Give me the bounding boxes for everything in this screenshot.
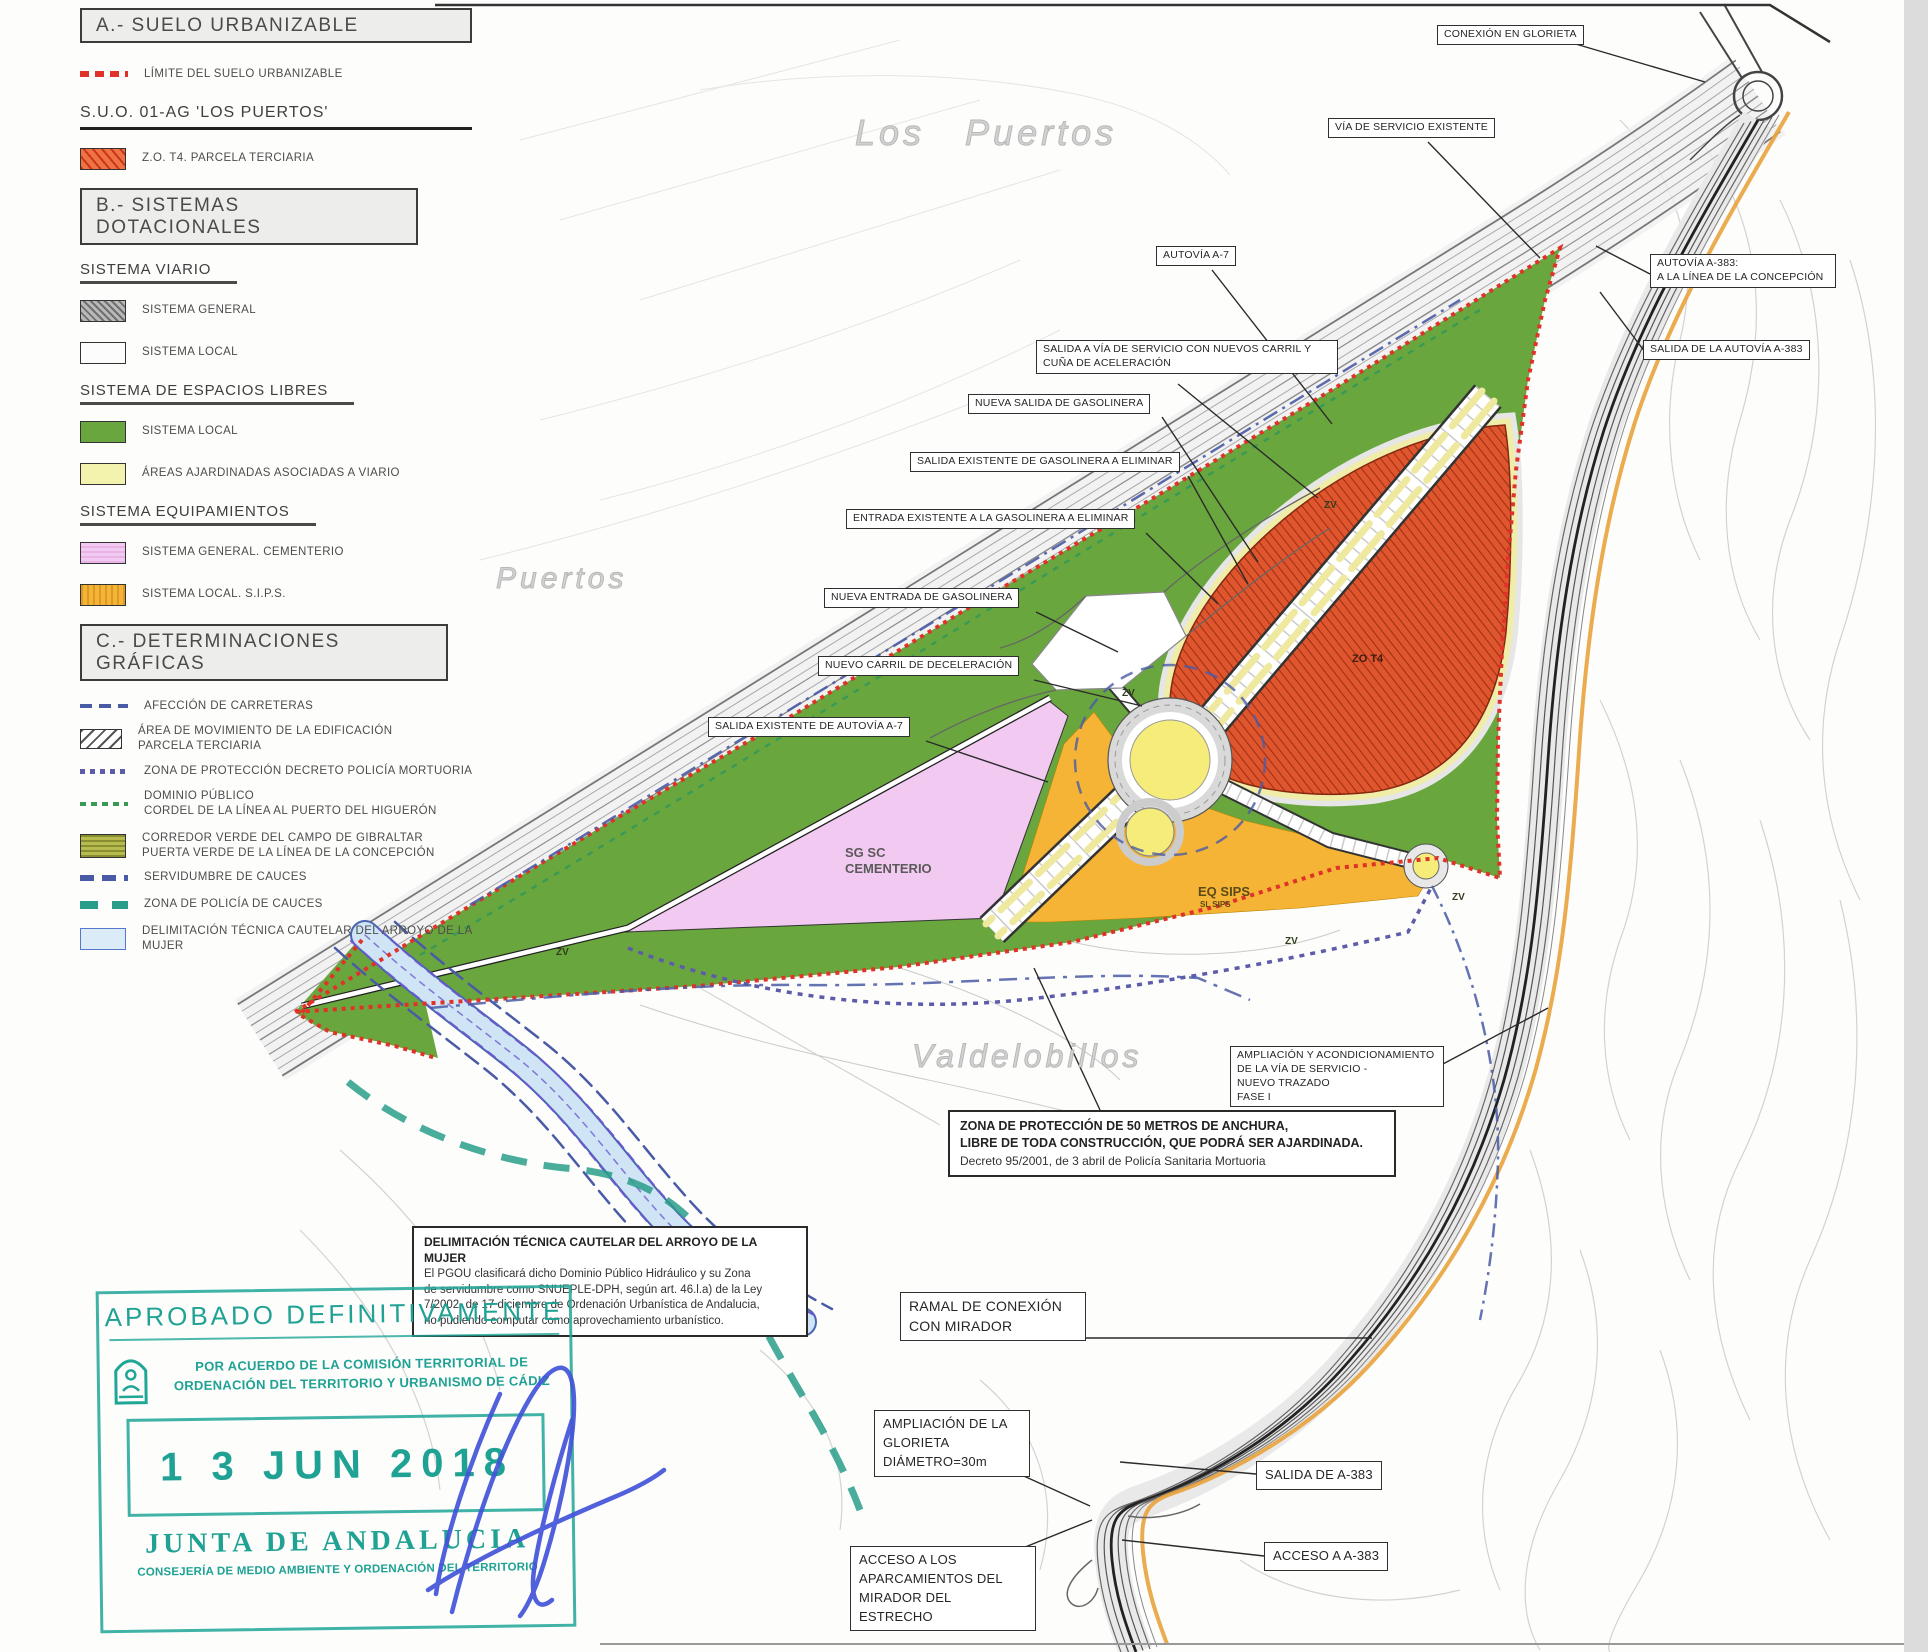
plan-sheet: A.- SUELO URBANIZABLE LÍMITE DEL SUELO U… bbox=[0, 0, 1928, 1652]
callout-autovia-a7: AUTOVÍA A-7 bbox=[1156, 246, 1236, 266]
legend-item-label: AFECCIÓN DE CARRETERAS bbox=[144, 699, 313, 714]
legend-heading-equipamientos: SISTEMA EQUIPAMIENTOS bbox=[80, 503, 316, 526]
note-zona-proteccion: ZONA DE PROTECCIÓN DE 50 METROS DE ANCHU… bbox=[948, 1110, 1396, 1177]
note-title: ZONA DE PROTECCIÓN DE 50 METROS DE ANCHU… bbox=[960, 1118, 1384, 1152]
junta-andalucia-emblem-icon bbox=[107, 1345, 154, 1410]
callout-nueva-salida-gasolinera: NUEVA SALIDA DE GASOLINERA bbox=[968, 394, 1150, 414]
callout-salida-existente-a7: SALIDA EXISTENTE DE AUTOVÍA A-7 bbox=[708, 717, 910, 737]
legend-title-a: A.- SUELO URBANIZABLE bbox=[80, 8, 472, 43]
legend-item: SISTEMA LOCAL. S.I.P.S. bbox=[80, 584, 482, 606]
cementerio-swatch bbox=[80, 542, 126, 564]
legend-heading-viario: SISTEMA VIARIO bbox=[80, 261, 237, 284]
stamp-date-box: 1 3 JUN 2018 bbox=[126, 1413, 545, 1517]
legend-item: SISTEMA LOCAL bbox=[80, 421, 482, 443]
callout-salida-a383: SALIDA DE A-383 bbox=[1256, 1461, 1382, 1490]
dominio-publico-swatch bbox=[80, 802, 128, 806]
legend-item: LÍMITE DEL SUELO URBANIZABLE bbox=[80, 67, 482, 82]
legend-item: DOMINIO PÚBLICO CORDEL DE LA LÍNEA AL PU… bbox=[80, 789, 482, 819]
callout-acceso-a383: ACCESO A A-383 bbox=[1264, 1542, 1388, 1571]
callout-conexion-glorieta: CONEXIÓN EN GLORIETA bbox=[1437, 25, 1584, 45]
legend-item-label: ZONA DE PROTECCIÓN DECRETO POLICÍA MORTU… bbox=[144, 764, 472, 779]
zone-label-zv: ZV bbox=[1452, 892, 1465, 905]
zone-label-zo-t4: ZO T4 bbox=[1352, 653, 1383, 667]
area-movimiento-swatch bbox=[80, 729, 122, 749]
legend-item: CORREDOR VERDE DEL CAMPO DE GIBRALTAR PU… bbox=[80, 831, 482, 861]
callout-salida-via-servicio: SALIDA A VÍA DE SERVICIO CON NUEVOS CARR… bbox=[1036, 340, 1338, 374]
zone-label-zv: ZV bbox=[1285, 936, 1298, 949]
legend-item: SISTEMA GENERAL. CEMENTERIO bbox=[80, 542, 482, 564]
legend-item-label: DOMINIO PÚBLICO CORDEL DE LA LÍNEA AL PU… bbox=[144, 789, 437, 819]
legend-item-label: SISTEMA GENERAL bbox=[142, 303, 256, 318]
stamp-date: 1 3 JUN 2018 bbox=[130, 1440, 515, 1490]
callout-autovia-a383: AUTOVÍA A-383: A LA LÍNEA DE LA CONCEPCI… bbox=[1650, 254, 1836, 288]
legend-item: SERVIDUMBRE DE CAUCES bbox=[80, 870, 482, 885]
place-name-puertos: Puertos bbox=[496, 562, 627, 596]
paper-edge bbox=[1904, 0, 1928, 1652]
legend-item: ZONA DE PROTECCIÓN DECRETO POLICÍA MORTU… bbox=[80, 764, 482, 779]
legend-item-label: ÁREAS AJARDINADAS ASOCIADAS A VIARIO bbox=[142, 466, 400, 481]
legend-item: AFECCIÓN DE CARRETERAS bbox=[80, 699, 482, 714]
sistema-local-viario-swatch bbox=[80, 342, 126, 364]
stamp-approval-text: APROBADO DEFINITIVAMENTE bbox=[99, 1296, 569, 1334]
legend-subheading-suo: S.U.O. 01-AG 'LOS PUERTOS' bbox=[80, 104, 472, 130]
callout-ampliacion-via-servicio: AMPLIACIÓN Y ACONDICIONAMIENTO DE LA VÍA… bbox=[1230, 1046, 1444, 1107]
zone-label-zv: ZV bbox=[1324, 500, 1337, 513]
note-body: Decreto 95/2001, de 3 abril de Policía S… bbox=[960, 1153, 1384, 1169]
stamp-dept: CONSEJERÍA DE MEDIO AMBIENTE Y ORDENACIÓ… bbox=[102, 1561, 572, 1580]
callout-salida-existente-gasolinera: SALIDA EXISTENTE DE GASOLINERA A ELIMINA… bbox=[910, 452, 1180, 472]
note-title: DELIMITACIÓN TÉCNICA CAUTELAR DEL ARROYO… bbox=[424, 1234, 796, 1266]
legend-item-label: CORREDOR VERDE DEL CAMPO DE GIBRALTAR PU… bbox=[142, 831, 435, 861]
parcela-terciaria-swatch bbox=[80, 148, 126, 170]
legend-title-c: C.- DETERMINACIONES GRÁFICAS bbox=[80, 624, 448, 681]
legend-panel: A.- SUELO URBANIZABLE LÍMITE DEL SUELO U… bbox=[80, 8, 482, 954]
zone-label-eq-sips: EQ SIPS bbox=[1198, 884, 1250, 900]
legend-item-label: ÁREA DE MOVIMIENTO DE LA EDIFICACIÓN PAR… bbox=[138, 724, 392, 754]
callout-nueva-entrada-gasolinera: NUEVA ENTRADA DE GASOLINERA bbox=[824, 588, 1019, 608]
legend-item-label: SISTEMA LOCAL. S.I.P.S. bbox=[142, 587, 286, 602]
legend-heading-espacios: SISTEMA DE ESPACIOS LIBRES bbox=[80, 382, 354, 405]
place-name-valdelobillos: Valdelobillos bbox=[912, 1038, 1142, 1075]
sistema-general-swatch bbox=[80, 300, 126, 322]
servidumbre-swatch bbox=[80, 875, 128, 881]
glorieta-este bbox=[1404, 844, 1448, 888]
legend-item: DELIMITACIÓN TÉCNICA CAUTELAR DEL ARROYO… bbox=[80, 924, 482, 954]
legend-item-label: DELIMITACIÓN TÉCNICA CAUTELAR DEL ARROYO… bbox=[142, 924, 482, 954]
corredor-verde-swatch bbox=[80, 834, 126, 858]
sips-swatch bbox=[80, 584, 126, 606]
legend-item-label: Z.O. T4. PARCELA TERCIARIA bbox=[142, 151, 314, 166]
callout-salida-autovia-a383: SALIDA DE LA AUTOVÍA A-383 bbox=[1643, 340, 1810, 360]
legend-item: ÁREA DE MOVIMIENTO DE LA EDIFICACIÓN PAR… bbox=[80, 724, 482, 754]
legend-item-label: SERVIDUMBRE DE CAUCES bbox=[144, 870, 307, 885]
legend-item: Z.O. T4. PARCELA TERCIARIA bbox=[80, 148, 482, 170]
espacios-local-swatch bbox=[80, 421, 126, 443]
ajardinadas-swatch bbox=[80, 463, 126, 485]
callout-nuevo-carril-deceleracion: NUEVO CARRIL DE DECELERACIÓN bbox=[818, 656, 1019, 676]
legend-item: SISTEMA LOCAL bbox=[80, 342, 482, 364]
callout-ampliacion-glorieta: AMPLIACIÓN DE LA GLORIETA DIÁMETRO=30m bbox=[874, 1410, 1030, 1477]
callout-acceso-aparcamientos: ACCESO A LOS APARCAMIENTOS DEL MIRADOR D… bbox=[850, 1546, 1036, 1631]
legend-item: ÁREAS AJARDINADAS ASOCIADAS A VIARIO bbox=[80, 463, 482, 485]
zone-label-sl-sips: SL SIPS bbox=[1200, 900, 1231, 910]
legend-item-label: SISTEMA GENERAL. CEMENTERIO bbox=[142, 545, 344, 560]
legend-title-b: B.- SISTEMAS DOTACIONALES bbox=[80, 188, 418, 245]
stamp-org: JUNTA DE ANDALUCIA bbox=[102, 1523, 572, 1562]
mortuoria-swatch bbox=[80, 769, 128, 774]
zone-label-cementerio: SG SC CEMENTERIO bbox=[845, 845, 932, 878]
callout-entrada-existente-gasolinera: ENTRADA EXISTENTE A LA GASOLINERA A ELIM… bbox=[846, 509, 1135, 529]
zone-label-zv: ZV bbox=[556, 947, 569, 960]
legend-item-label: LÍMITE DEL SUELO URBANIZABLE bbox=[144, 67, 343, 82]
afeccion-swatch bbox=[80, 704, 128, 708]
legend-item: SISTEMA GENERAL bbox=[80, 300, 482, 322]
stamp-agreement-text: POR ACUERDO DE LA COMISIÓN TERRITORIAL D… bbox=[162, 1351, 563, 1396]
approval-stamp: APROBADO DEFINITIVAMENTE POR ACUERDO DE … bbox=[96, 1285, 577, 1634]
place-name-los-puertos: Los Puertos bbox=[855, 112, 1117, 154]
arroyo-swatch bbox=[80, 928, 126, 950]
legend-item: ZONA DE POLICÍA DE CAUCES bbox=[80, 897, 482, 912]
stamp-line3: ORDENACIÓN DEL TERRITORIO Y URBANISMO DE… bbox=[162, 1371, 562, 1396]
policia-cauces-swatch bbox=[80, 901, 128, 909]
callout-ramal-conexion-mirador: RAMAL DE CONEXIÓN CON MIRADOR bbox=[900, 1292, 1086, 1341]
zone-label-zv: ZV bbox=[1122, 688, 1135, 701]
legend-item-label: SISTEMA LOCAL bbox=[142, 345, 238, 360]
limite-swatch bbox=[80, 71, 128, 77]
callout-via-servicio-existente: VÍA DE SERVICIO EXISTENTE bbox=[1328, 118, 1495, 138]
legend-item-label: SISTEMA LOCAL bbox=[142, 424, 238, 439]
legend-item-label: ZONA DE POLICÍA DE CAUCES bbox=[144, 897, 323, 912]
